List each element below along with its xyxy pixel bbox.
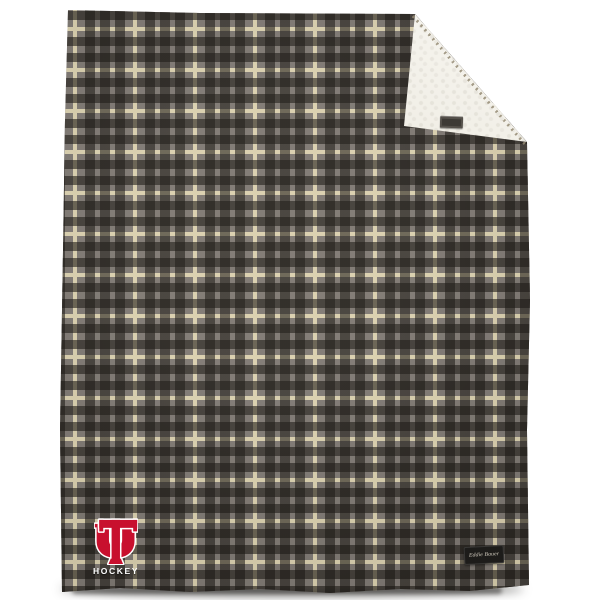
ut-hockey-logo: HOCKEY — [91, 518, 141, 576]
fabric-shading — [0, 0, 600, 600]
ut-monogram-icon — [94, 518, 138, 565]
sherpa-fabric-tag-label — [442, 119, 461, 127]
blanket: HOCKEY Eddie Bauer — [0, 0, 600, 600]
brand-tag-label: Eddie Bauer — [469, 552, 499, 559]
sherpa-fabric-tag — [440, 116, 463, 129]
brand-tag: Eddie Bauer — [464, 545, 505, 565]
logo-word: HOCKEY — [93, 566, 139, 576]
product-photo: HOCKEY Eddie Bauer — [0, 0, 600, 600]
